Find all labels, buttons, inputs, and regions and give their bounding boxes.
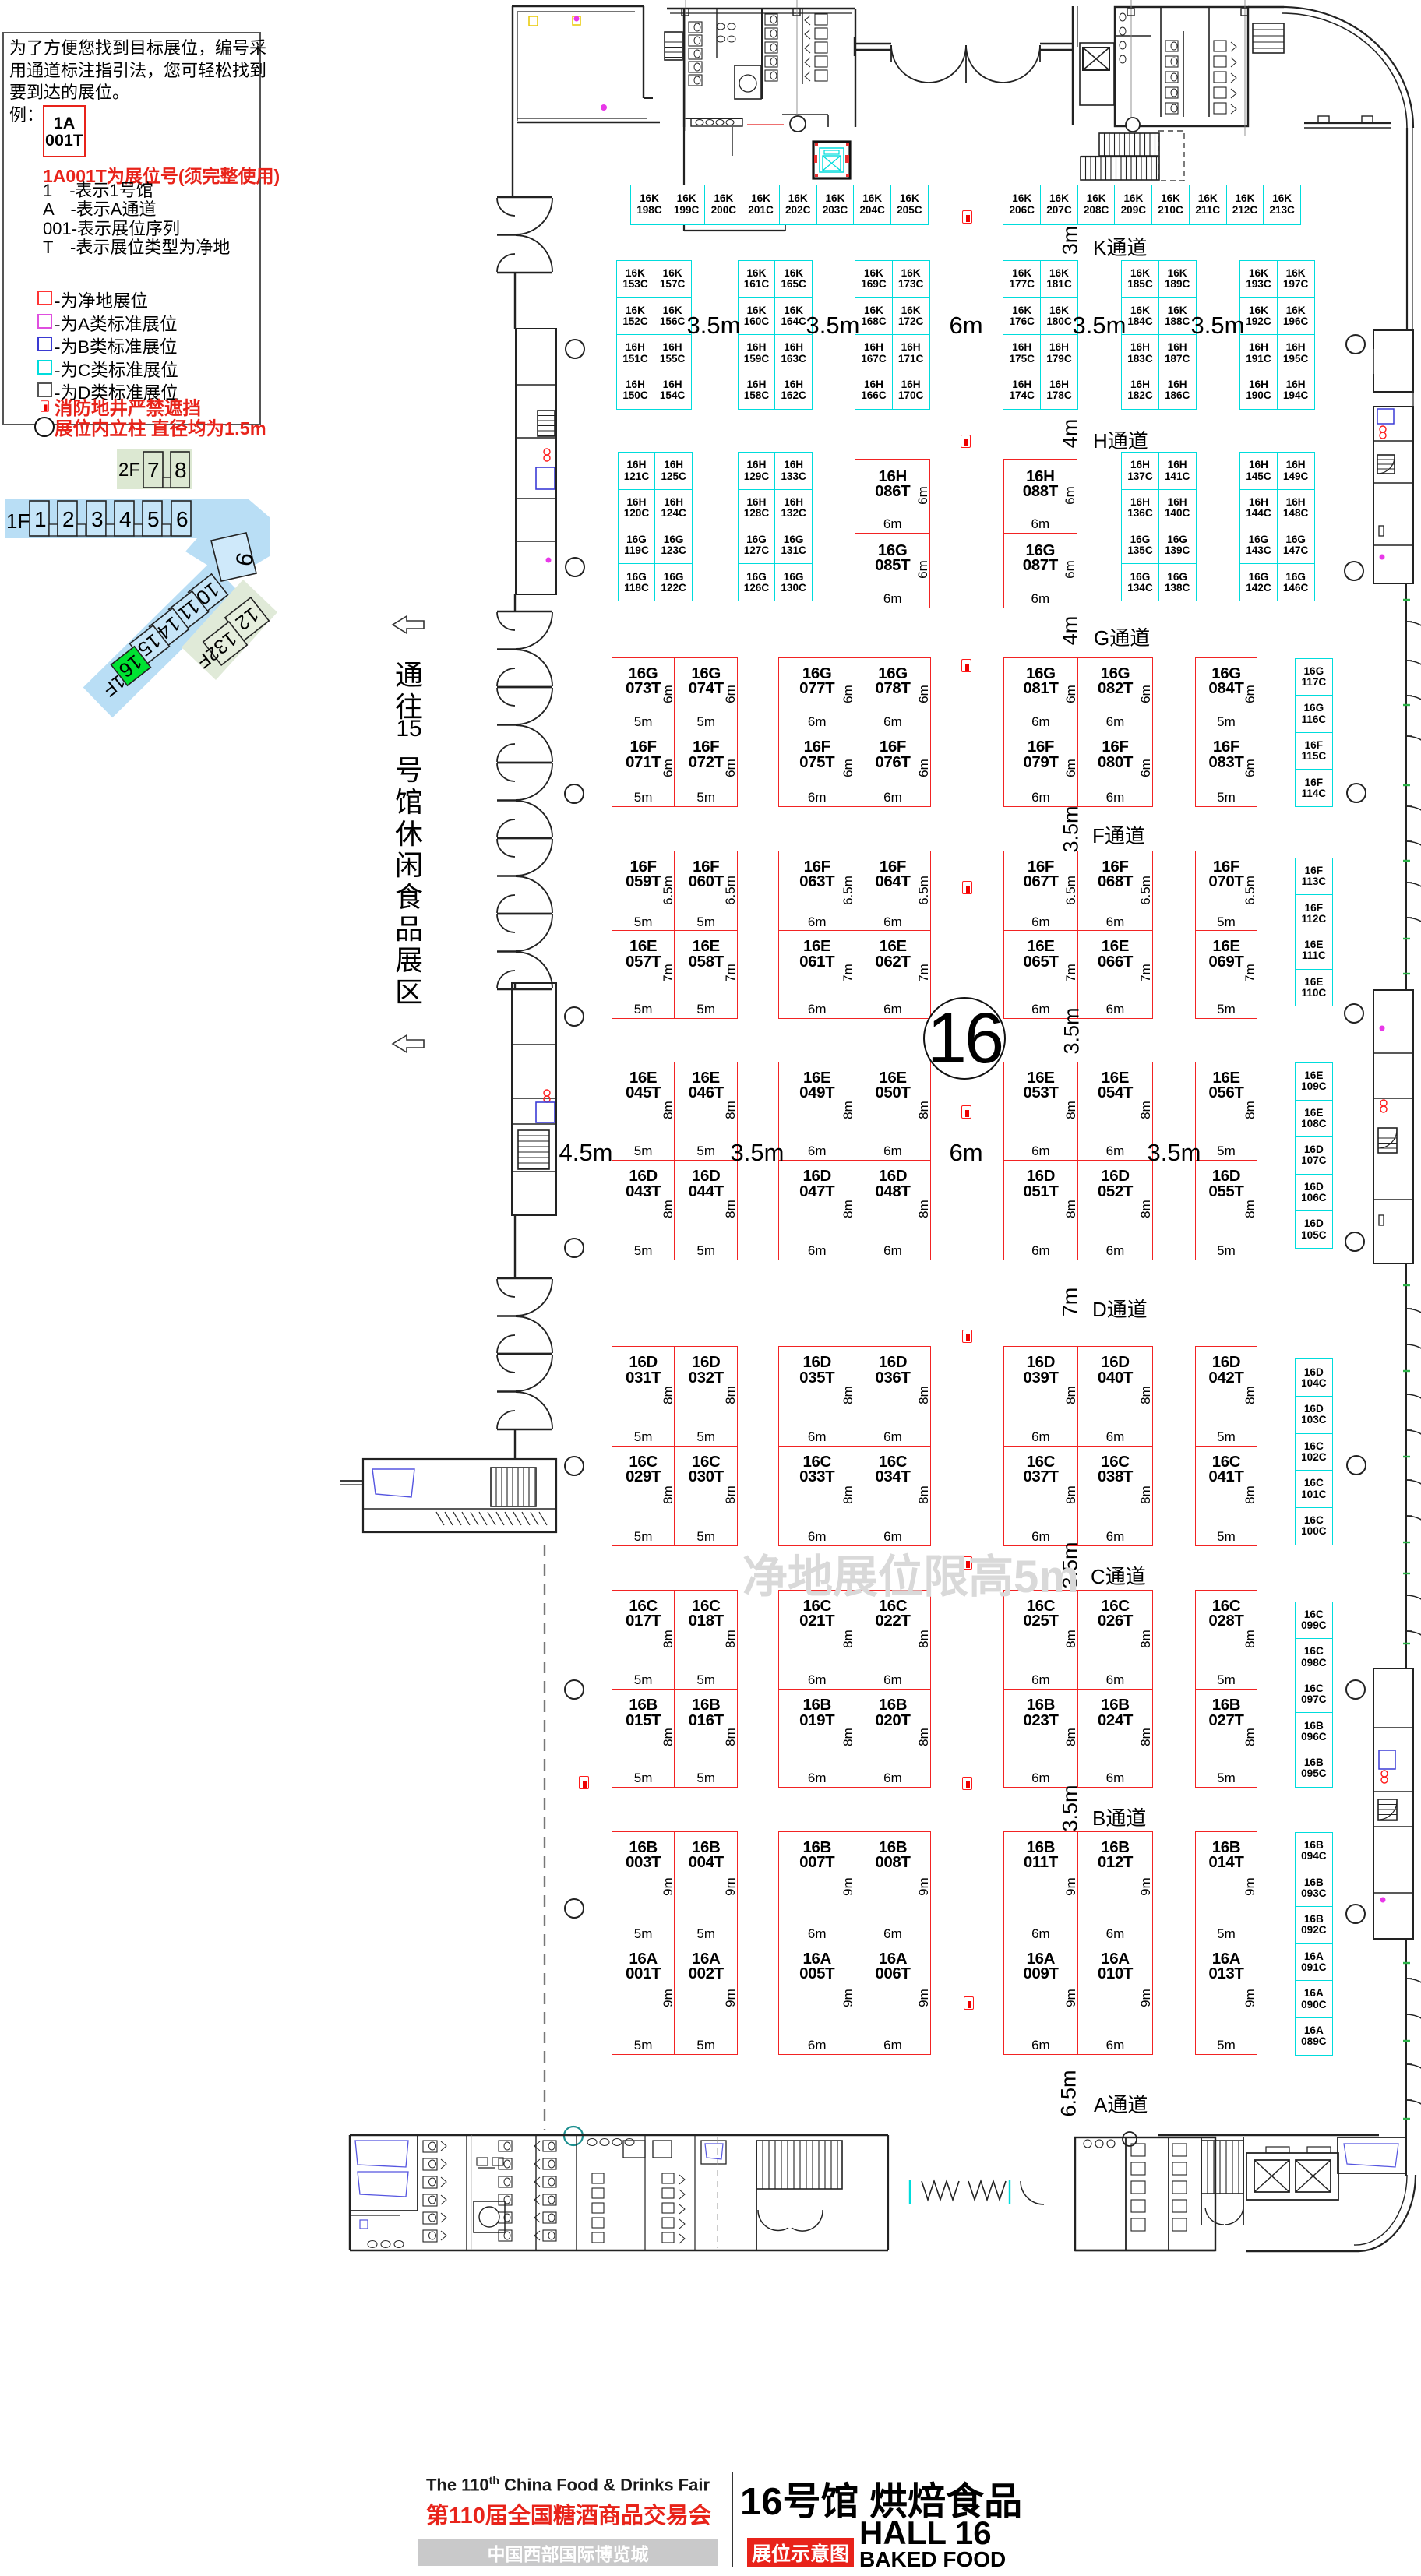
svg-text:1: 1	[34, 507, 47, 531]
svg-text:3: 3	[91, 507, 104, 531]
svg-text:4: 4	[119, 507, 132, 531]
svg-text:5: 5	[147, 507, 160, 531]
svg-text:8: 8	[175, 458, 187, 482]
svg-text:1F: 1F	[6, 509, 30, 533]
svg-text:2F: 2F	[118, 460, 140, 481]
svg-text:7: 7	[147, 458, 160, 482]
svg-text:2: 2	[62, 507, 75, 531]
svg-text:6: 6	[176, 507, 189, 531]
